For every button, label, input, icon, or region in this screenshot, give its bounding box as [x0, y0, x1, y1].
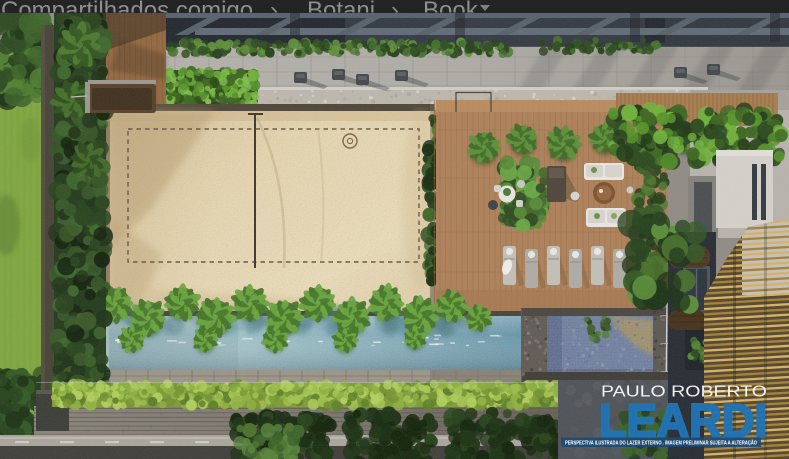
svg-text:PERSPECTIVA ILUSTRADA DO LAZER: PERSPECTIVA ILUSTRADA DO LAZER EXTERNO .…: [565, 440, 757, 447]
